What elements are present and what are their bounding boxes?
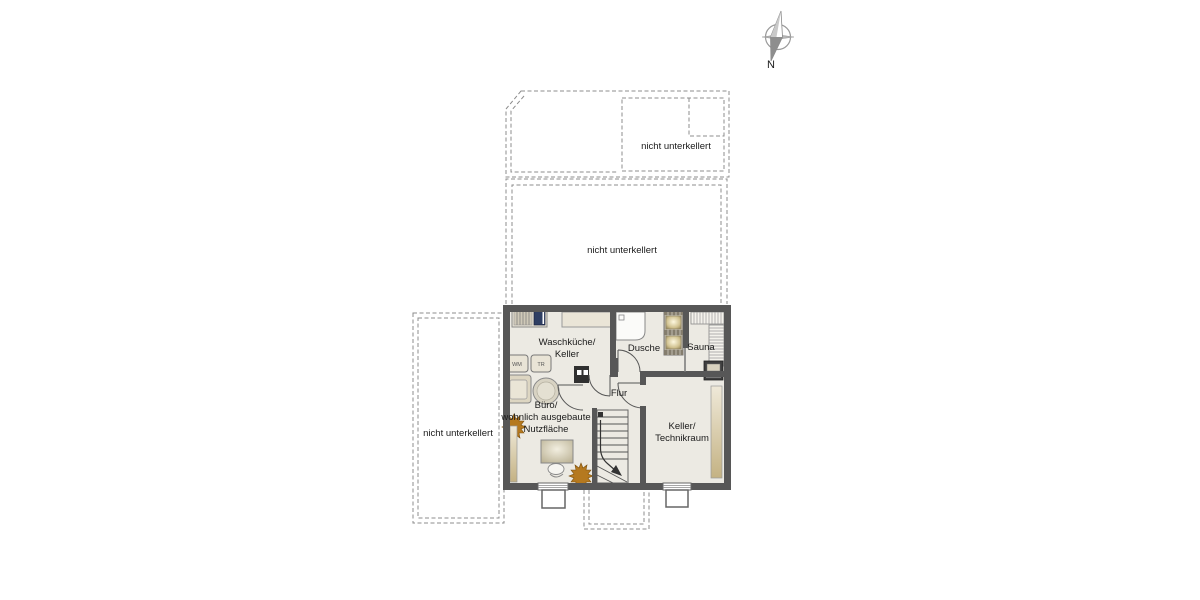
label-sauna: Sauna bbox=[687, 342, 715, 353]
window-bottom-left bbox=[538, 483, 568, 508]
dashed-outline-top-region bbox=[506, 91, 729, 177]
sauna-heater bbox=[704, 361, 723, 380]
shower-column-fixture bbox=[664, 310, 683, 355]
label-buero-line1: Büro/ bbox=[535, 400, 558, 411]
shower-tray bbox=[616, 312, 645, 340]
label-technikraum-line1: Keller/ bbox=[669, 421, 696, 432]
counter bbox=[562, 312, 614, 327]
washing-machine-label: WM bbox=[512, 362, 522, 368]
compass: N bbox=[762, 11, 794, 71]
label-buero-line3: Nutzfläche bbox=[524, 424, 569, 435]
window-sill-left bbox=[510, 426, 517, 482]
label-technikraum-line2: Technikraum bbox=[655, 433, 709, 444]
dashed-outline-middle-region bbox=[506, 179, 727, 304]
dashed-outline-bottom-lightwell bbox=[584, 490, 649, 529]
stair-arrow-start bbox=[598, 412, 603, 417]
desk bbox=[541, 440, 573, 463]
dryer-label: TR bbox=[537, 362, 544, 368]
label-flur: Flur bbox=[611, 388, 627, 399]
label-waschkueche-line2: Keller bbox=[555, 349, 579, 360]
chimney-block bbox=[574, 366, 589, 383]
floor-plan-page: WM TR bbox=[0, 0, 1200, 600]
north-label: N bbox=[767, 59, 775, 71]
sauna-bench-top bbox=[691, 312, 724, 324]
light-well-right bbox=[666, 490, 688, 507]
label-region-left: nicht unterkellert bbox=[423, 428, 493, 439]
dashed-outline-left-region bbox=[413, 313, 504, 523]
label-region-middle: nicht unterkellert bbox=[587, 245, 657, 256]
label-buero-line2: wohnlich ausgebaute bbox=[500, 412, 590, 423]
dryer-symbol: TR bbox=[531, 355, 551, 372]
window-sill-right bbox=[711, 386, 722, 478]
label-waschkueche-line1: Waschküche/ bbox=[539, 337, 596, 348]
floor-plan-svg: WM TR bbox=[0, 0, 1200, 600]
window-bottom-right bbox=[663, 483, 691, 507]
label-dusche: Dusche bbox=[628, 343, 660, 354]
light-well-left bbox=[542, 490, 565, 508]
staircase bbox=[597, 410, 628, 483]
label-region-top: nicht unterkellert bbox=[641, 141, 711, 152]
